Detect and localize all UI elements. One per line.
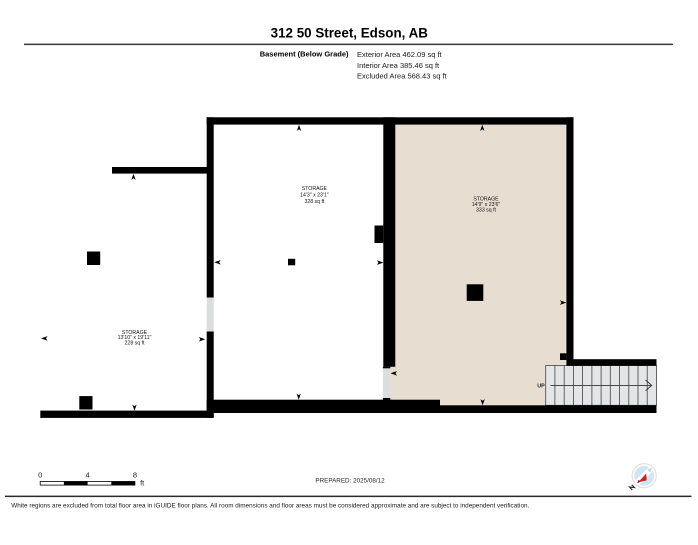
svg-text:Exterior Area 462.09 sq ft: Exterior Area 462.09 sq ft xyxy=(357,50,443,59)
svg-text:White regions are excluded fro: White regions are excluded from total fl… xyxy=(11,503,529,510)
svg-text:8: 8 xyxy=(133,470,137,479)
svg-text:Excluded Area 568.43 sq ft: Excluded Area 568.43 sq ft xyxy=(357,72,448,81)
svg-text:PREPARED: 2025/08/12: PREPARED: 2025/08/12 xyxy=(315,478,385,485)
svg-text:4: 4 xyxy=(86,470,90,479)
svg-text:333 sq ft: 333 sq ft xyxy=(476,208,496,214)
svg-text:UP: UP xyxy=(537,384,545,390)
svg-text:328 sq ft: 328 sq ft xyxy=(304,199,324,205)
svg-text:228 sq ft: 228 sq ft xyxy=(125,341,145,347)
svg-text:STORAGE: STORAGE xyxy=(302,186,328,192)
svg-text:0: 0 xyxy=(38,470,42,479)
svg-text:Basement (Below Grade): Basement (Below Grade) xyxy=(260,50,349,59)
svg-text:Interior Area 385.46 sq ft: Interior Area 385.46 sq ft xyxy=(357,61,440,70)
svg-text:312 50 Street, Edson, AB: 312 50 Street, Edson, AB xyxy=(271,25,429,40)
svg-text:14'3" x 23'1": 14'3" x 23'1" xyxy=(300,193,329,199)
